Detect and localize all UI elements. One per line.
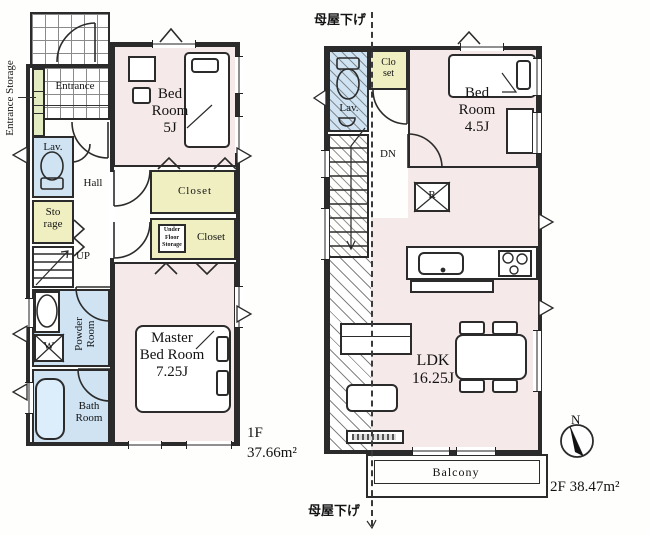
window	[152, 40, 196, 48]
window	[460, 43, 504, 51]
bath-room-label: Bath Room	[68, 400, 110, 425]
roof-lowered-bottom-label: 母屋下げ	[294, 504, 360, 519]
window	[186, 441, 232, 449]
dining-chair-1	[459, 321, 485, 335]
porch-1f	[30, 12, 110, 66]
floor2-area: 38.47m²	[570, 479, 620, 495]
lavatory-2f-label: Lav.	[331, 102, 367, 114]
ldk-label: LDK 16.25J	[398, 352, 468, 388]
washer-label: W	[34, 340, 64, 352]
dining-chair-2	[492, 321, 518, 335]
window	[25, 298, 33, 328]
entrance-storage-leader	[18, 97, 36, 98]
bedroom-5j-label: Bed Room 5J	[140, 86, 200, 136]
bathtub	[35, 378, 65, 440]
compass	[561, 425, 593, 457]
sofa-seat-line	[342, 336, 410, 337]
hall-label: Hall	[76, 177, 110, 189]
window	[235, 116, 243, 154]
floor1-label: 1F	[247, 423, 317, 443]
dining-chair-4	[492, 379, 518, 393]
entrance-storage-label: Entrance Storage	[4, 45, 18, 151]
window	[25, 382, 33, 414]
powder-room-label: Powder Room	[73, 311, 99, 357]
floor1-area-label: 1F 37.66m²	[247, 423, 317, 464]
window	[235, 56, 243, 94]
under-floor-storage-label: Under Floor Storage	[158, 227, 186, 250]
window	[321, 150, 329, 178]
closet-upper-label: Closet	[160, 185, 230, 197]
floor2-area-label: 2F 38.47m²	[550, 479, 650, 496]
window	[456, 447, 496, 455]
window	[533, 330, 541, 392]
floorplan-canvas: Entrance Storage Entrance Lav. Hall Sto …	[0, 0, 650, 535]
stove	[498, 250, 532, 277]
closet-2f-label: Clo set	[372, 57, 405, 79]
window	[533, 58, 541, 96]
floor2-label: 2F	[550, 479, 566, 495]
entrance-label: Entrance	[44, 80, 106, 92]
sofa	[340, 323, 412, 355]
stairs-up-label: UP	[70, 250, 96, 262]
compass-north-label: N	[571, 412, 581, 427]
pillow-5j	[191, 58, 219, 73]
window	[412, 447, 450, 455]
lavatory-1f-label: Lav.	[34, 141, 72, 153]
refrigerator-label: R	[414, 189, 450, 201]
tv-board-detail	[352, 434, 396, 440]
washbasin-counter	[34, 291, 60, 333]
kitchen-sink	[418, 252, 464, 275]
roof-lowered-top-label: 母屋下げ	[300, 13, 366, 28]
stairs-down-label: DN	[372, 148, 404, 160]
desk-2f	[506, 108, 534, 154]
desk-1f	[128, 56, 156, 82]
pillow-45j	[516, 60, 531, 90]
bedroom-45j-label: Bed Room 4.5J	[447, 85, 507, 135]
counter-front	[410, 280, 494, 293]
window	[235, 286, 243, 328]
closet-lower-label: Closet	[186, 231, 236, 243]
window	[321, 208, 329, 260]
roof-lowered-boundary-line	[371, 12, 373, 526]
window	[128, 441, 162, 449]
master-bedroom-label: Master Bed Room 7.25J	[118, 330, 226, 380]
storage-label: Sto rage	[34, 206, 72, 231]
balcony-label: Balcony	[416, 466, 496, 479]
window	[533, 112, 541, 154]
entrance-step-line	[34, 105, 108, 106]
floor1-area: 37.66m²	[247, 443, 317, 463]
